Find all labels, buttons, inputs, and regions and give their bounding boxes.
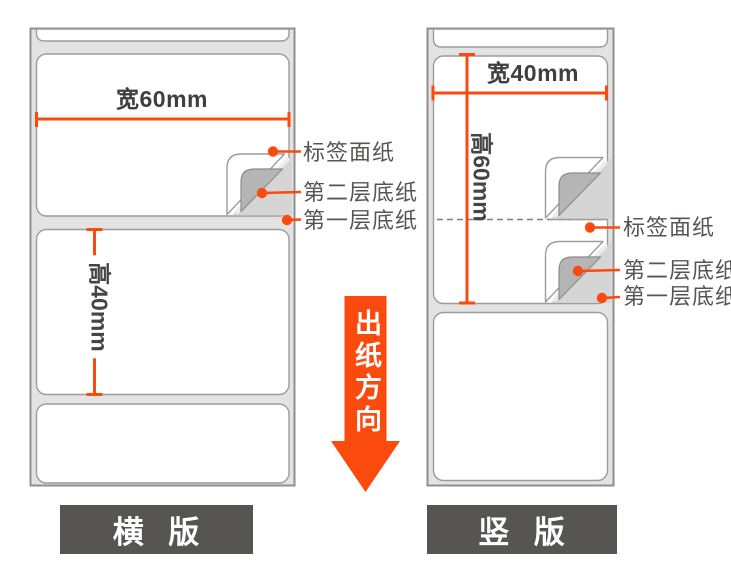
right-callout-dot-liner2 bbox=[573, 266, 583, 276]
right-callout-face-paper-label: 标签面纸 bbox=[623, 215, 715, 241]
right-roll-top-partial-label bbox=[434, 29, 608, 47]
right-width-dimension-label: 宽40mm bbox=[463, 60, 603, 86]
left-label-2 bbox=[37, 230, 290, 395]
right-callout-first-liner-label: 第一层底纸 bbox=[623, 284, 731, 310]
right-callout-dot-liner1 bbox=[597, 293, 607, 303]
left-callout-first-liner-label: 第一层底纸 bbox=[303, 208, 418, 234]
right-roll bbox=[428, 29, 621, 486]
vertical-version-caption: 竖 版 bbox=[427, 505, 617, 554]
left-callout-dot-face bbox=[268, 146, 278, 156]
right-callout-dot-face bbox=[585, 222, 595, 232]
horizontal-version-caption: 横 版 bbox=[60, 505, 253, 554]
right-label-bottom bbox=[434, 313, 608, 481]
left-callout-line-liner2 bbox=[262, 192, 301, 193]
left-callout-dot-liner1 bbox=[282, 215, 292, 225]
left-roll-top-partial-label bbox=[37, 29, 290, 41]
right-callout-second-liner-label: 第二层底纸 bbox=[623, 258, 731, 284]
left-callout-second-liner-label: 第二层底纸 bbox=[303, 180, 418, 206]
feed-direction-label: 出纸方向 bbox=[350, 309, 381, 449]
right-callout-line-liner2 bbox=[578, 270, 620, 271]
left-label-3 bbox=[37, 404, 290, 483]
left-callout-dot-liner2 bbox=[257, 188, 267, 198]
left-width-dimension-label: 宽60mm bbox=[92, 86, 232, 112]
right-height-dimension-label: 高60mm bbox=[470, 132, 493, 221]
label-spec-diagram: 宽60mm 高40mm 宽40mm 高60mm 标签面纸 第二层底纸 第一层底纸… bbox=[0, 0, 731, 574]
left-callout-face-paper-label: 标签面纸 bbox=[303, 140, 395, 166]
left-height-dimension-label: 高40mm bbox=[86, 255, 113, 358]
